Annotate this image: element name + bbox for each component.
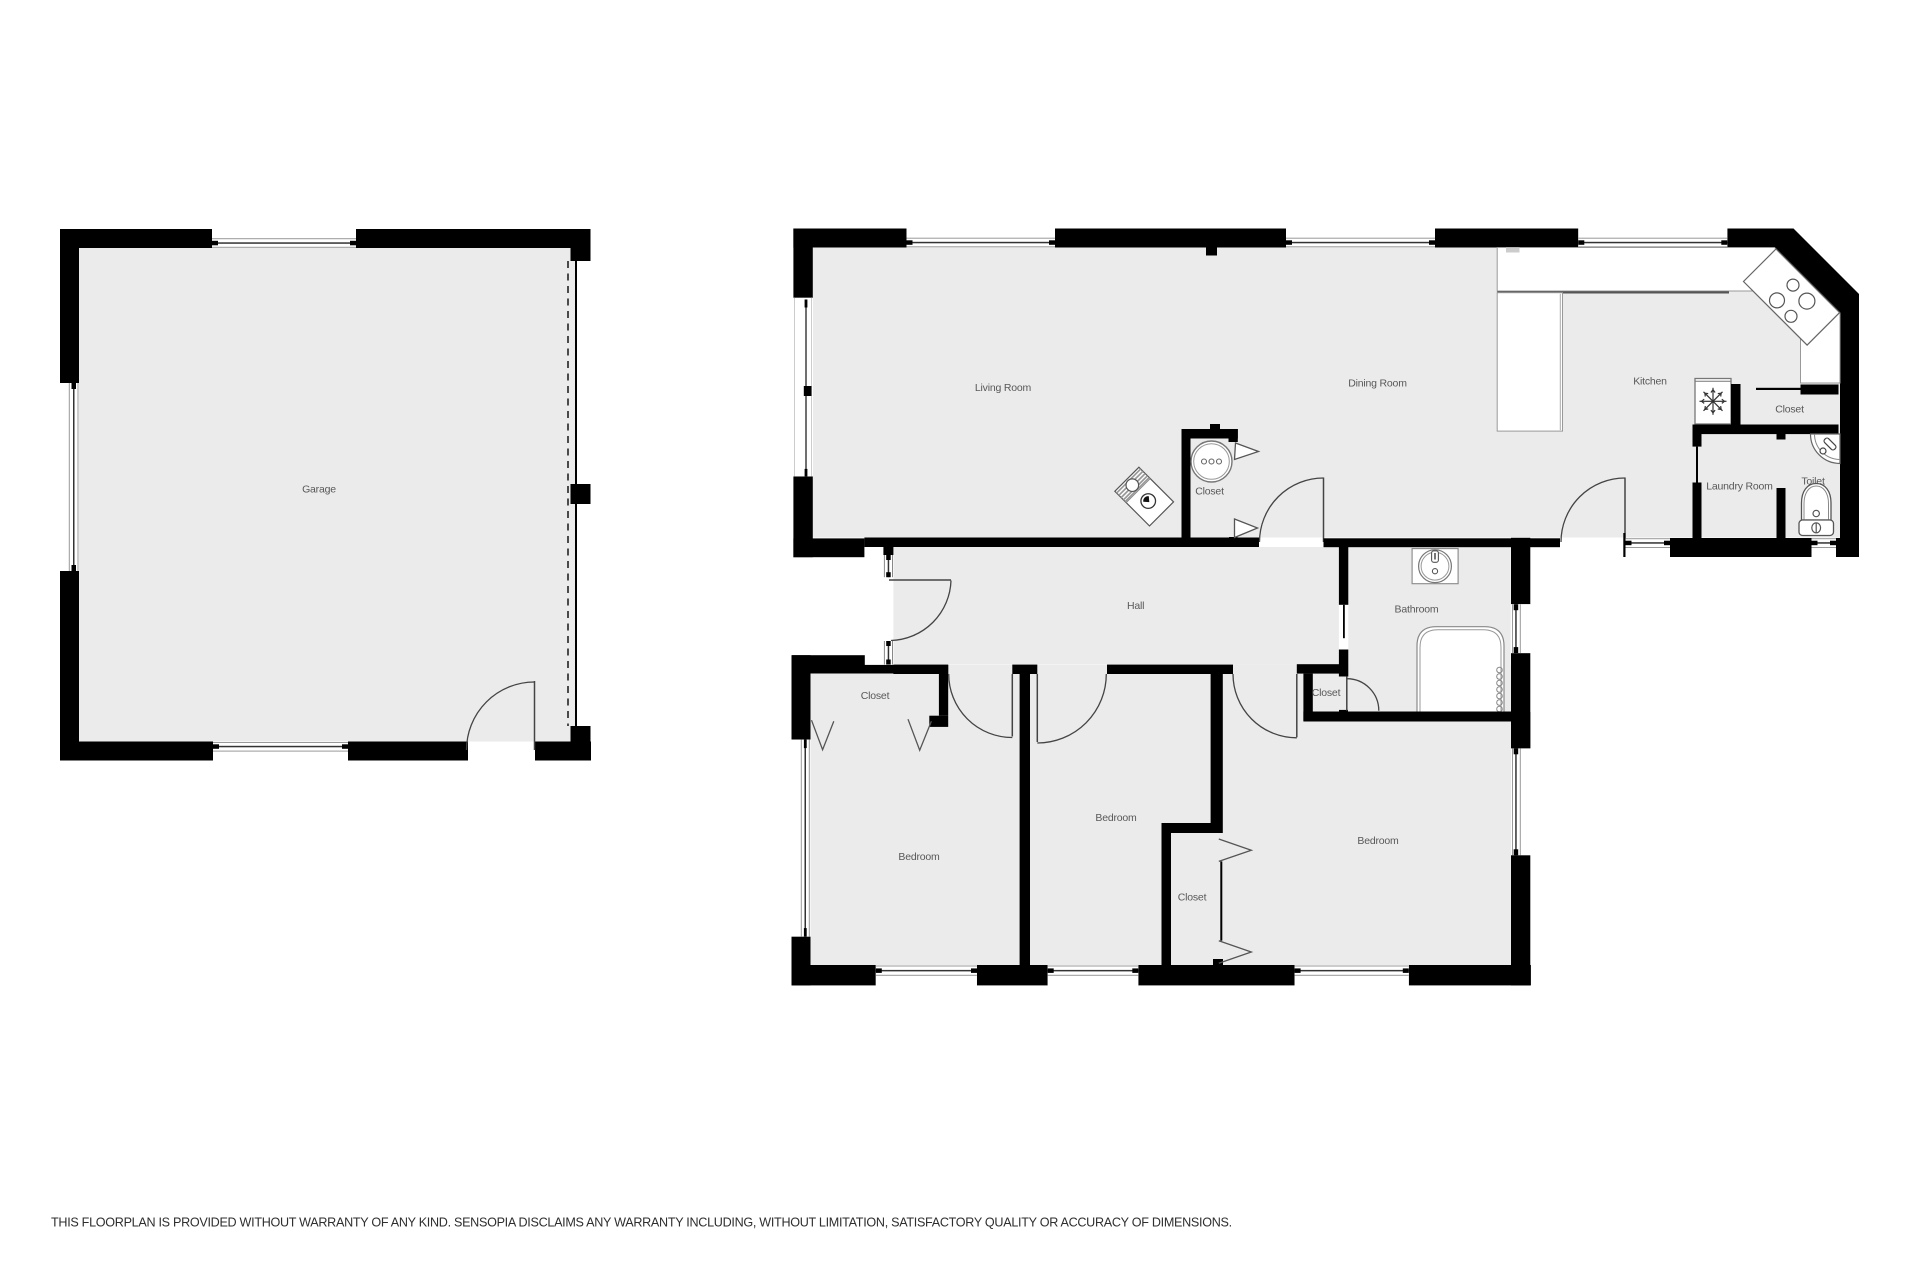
svg-text:Bedroom: Bedroom — [898, 851, 940, 863]
svg-text:THIS FLOORPLAN IS PROVIDED WIT: THIS FLOORPLAN IS PROVIDED WITHOUT WARRA… — [51, 1216, 1232, 1230]
svg-text:Closet: Closet — [1312, 687, 1341, 699]
svg-text:Bedroom: Bedroom — [1095, 812, 1137, 824]
svg-text:Laundry Room: Laundry Room — [1706, 481, 1773, 493]
svg-text:Bathroom: Bathroom — [1395, 604, 1439, 616]
svg-text:Closet: Closet — [1775, 404, 1804, 416]
svg-text:Closet: Closet — [1178, 892, 1207, 904]
svg-text:Hall: Hall — [1127, 600, 1144, 612]
svg-text:Dining Room: Dining Room — [1348, 377, 1407, 389]
svg-text:Closet: Closet — [1195, 486, 1224, 498]
svg-text:Garage: Garage — [302, 484, 336, 496]
svg-text:Closet: Closet — [861, 690, 890, 702]
svg-text:Living Room: Living Room — [975, 382, 1032, 394]
svg-text:Kitchen: Kitchen — [1633, 376, 1667, 388]
svg-text:Bedroom: Bedroom — [1357, 835, 1399, 847]
